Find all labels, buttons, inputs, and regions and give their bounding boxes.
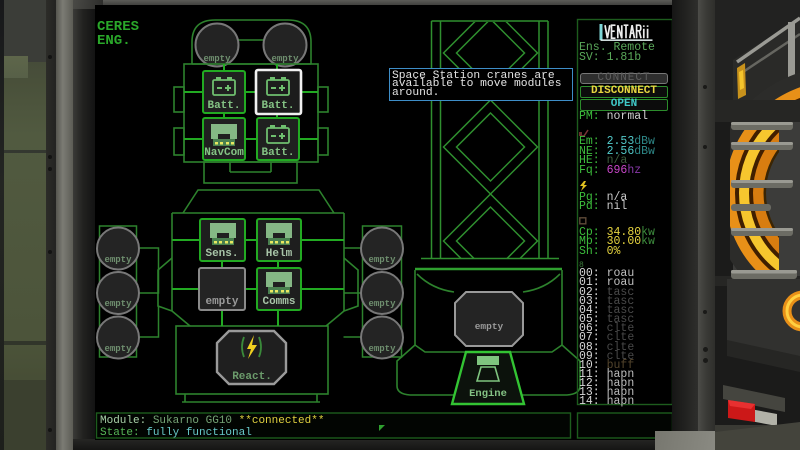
svg-text:Comms: Comms [262,296,295,308]
svg-text:empty: empty [203,54,231,64]
svg-text:empty: empty [104,299,132,309]
svg-text:Helm: Helm [266,248,293,260]
svg-text:NavCom: NavCom [204,147,244,159]
svg-text:empty: empty [368,255,396,265]
svg-text:empty: empty [368,299,396,309]
svg-text:Batt.: Batt. [207,100,240,112]
svg-text:empty: empty [104,344,132,354]
svg-text:empty: empty [205,296,238,308]
svg-text:empty: empty [271,54,299,64]
svg-text:Engine: Engine [469,388,507,400]
svg-text:empty: empty [368,344,396,354]
svg-text:Sens.: Sens. [205,248,238,260]
svg-text:React.: React. [232,371,272,383]
svg-text:empty: empty [475,321,504,332]
svg-text:Batt.: Batt. [261,147,294,159]
svg-text:empty: empty [104,255,132,265]
svg-text:Batt.: Batt. [261,100,294,112]
